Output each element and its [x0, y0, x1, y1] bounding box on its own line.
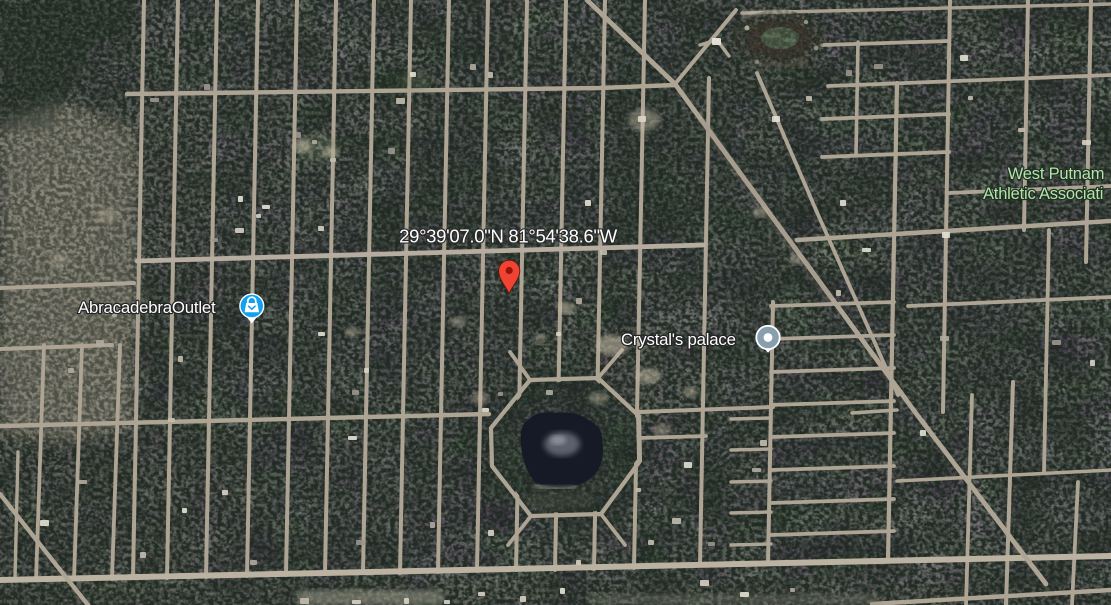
svg-text:29°39'07.0"N 81°54'38.6"W: 29°39'07.0"N 81°54'38.6"W [399, 226, 618, 247]
svg-text:Crystal's palace: Crystal's palace [621, 330, 736, 349]
svg-text:AbracadebraOutlet: AbracadebraOutlet [78, 298, 216, 317]
svg-text:Athletic Associati: Athletic Associati [983, 185, 1103, 203]
svg-text:West Putnam: West Putnam [1008, 165, 1105, 183]
